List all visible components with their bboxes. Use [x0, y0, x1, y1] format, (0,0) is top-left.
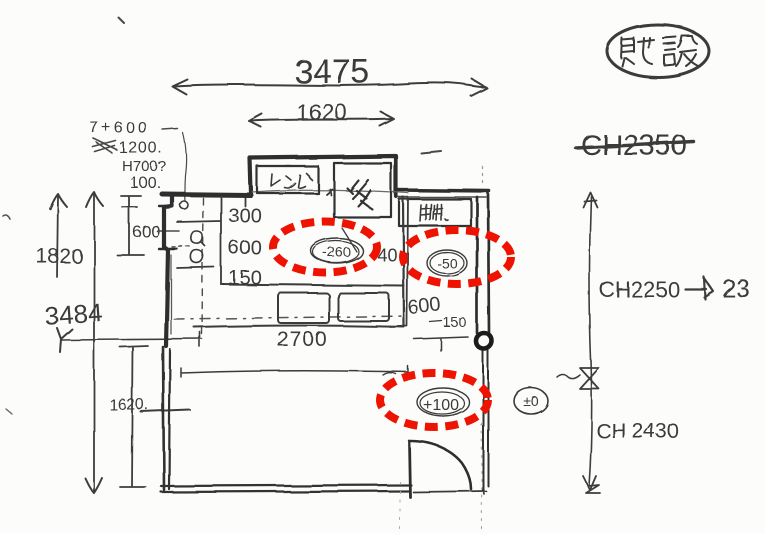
svg-text:CH2250: CH2250: [599, 277, 680, 302]
svg-text:150: 150: [443, 314, 467, 330]
svg-text:2700: 2700: [277, 328, 328, 351]
svg-text:7+600: 7+600: [90, 120, 150, 137]
svg-text:3475: 3475: [294, 53, 370, 91]
svg-text:1620: 1620: [296, 99, 347, 125]
svg-text:300: 300: [228, 205, 261, 227]
svg-text:-260: -260: [323, 244, 351, 260]
svg-text:600: 600: [407, 294, 442, 319]
svg-text:150: 150: [228, 267, 261, 289]
svg-text:+100: +100: [423, 397, 459, 414]
svg-text:600: 600: [228, 237, 261, 259]
svg-text:1200.: 1200.: [119, 140, 163, 157]
svg-text:-50: -50: [437, 255, 457, 271]
svg-text:600: 600: [132, 222, 160, 241]
svg-text:23: 23: [722, 275, 750, 303]
svg-text:100.: 100.: [130, 175, 161, 192]
svg-text:CH 2430: CH 2430: [596, 420, 679, 443]
svg-text:3484: 3484: [43, 297, 103, 331]
svg-text:H700?: H700?: [122, 158, 166, 175]
svg-text:1820: 1820: [36, 245, 83, 268]
svg-text:±0: ±0: [523, 393, 539, 409]
